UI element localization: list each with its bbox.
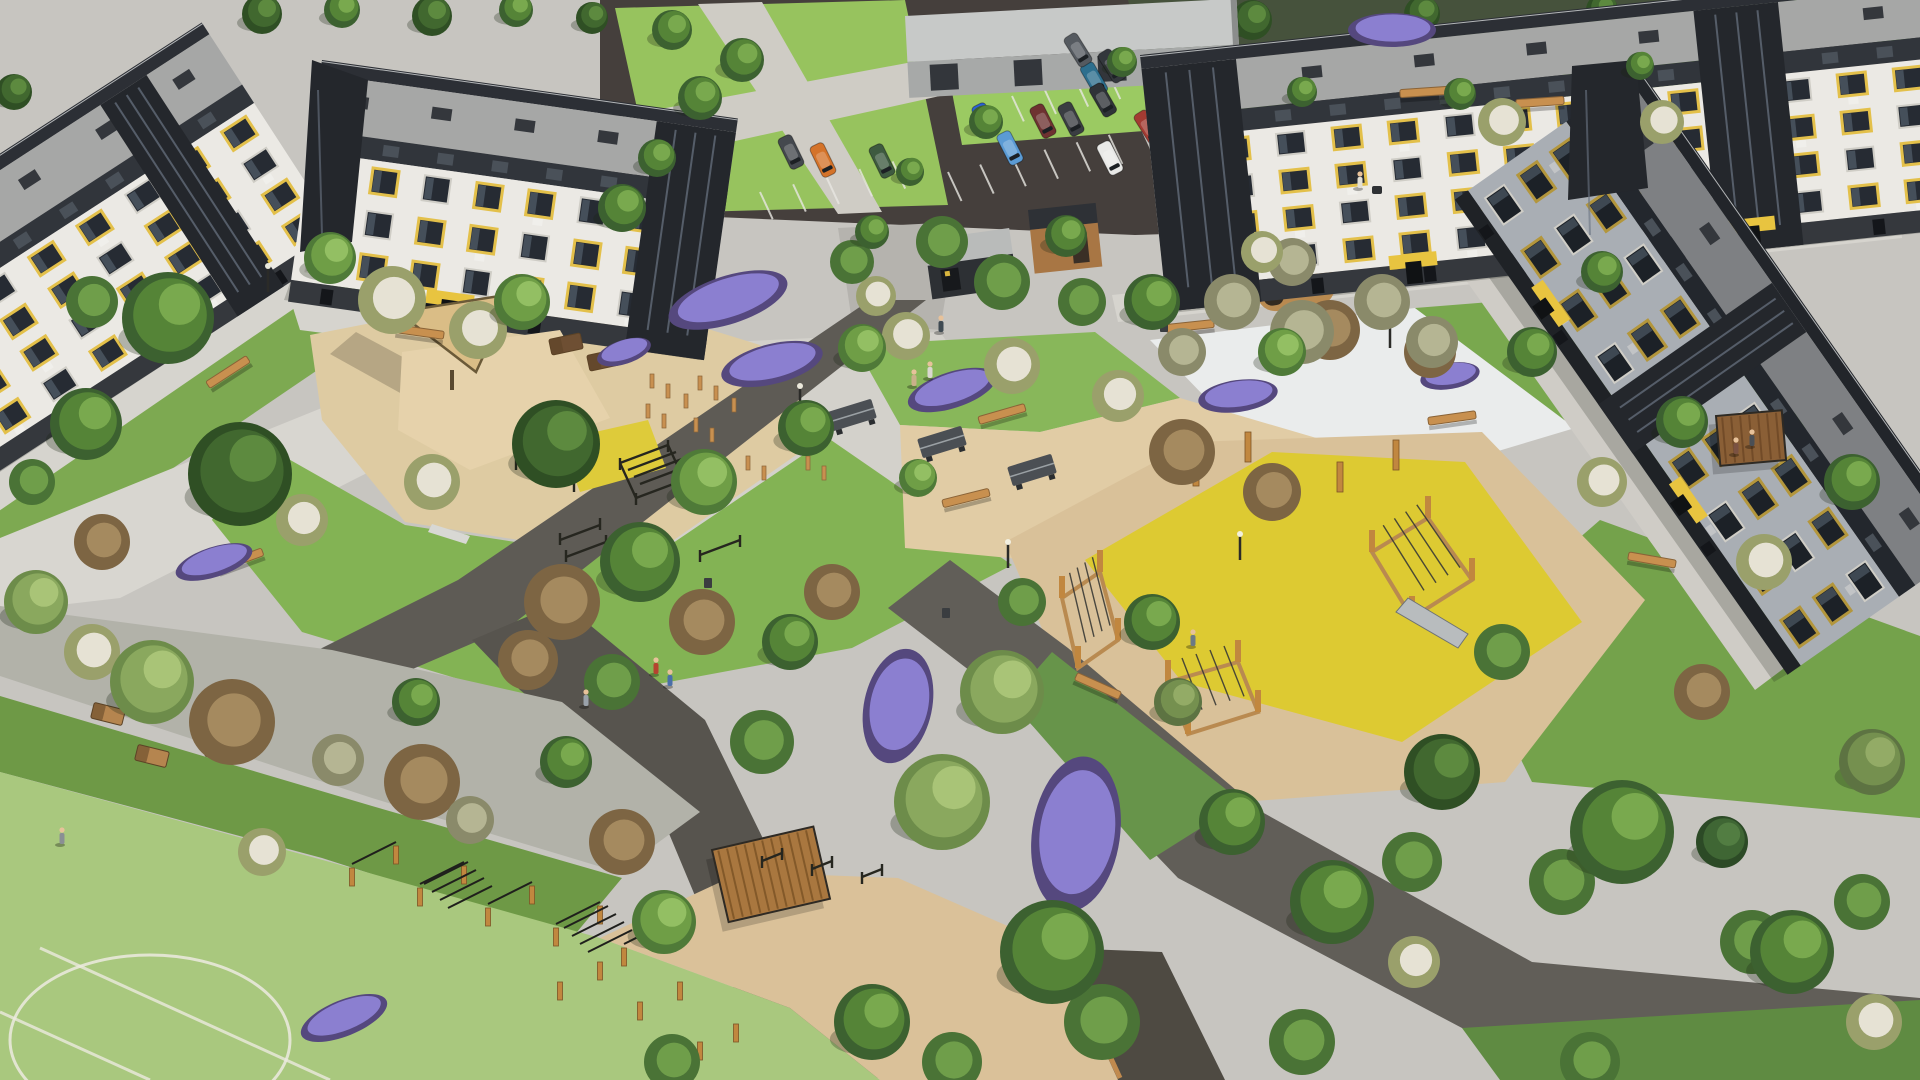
ornamental-grass-top bbox=[1217, 283, 1252, 318]
green-shrub bbox=[974, 254, 1030, 310]
tree-canopy-highlight bbox=[1225, 797, 1255, 827]
green-shrub-top bbox=[597, 663, 632, 698]
person-head bbox=[653, 657, 658, 662]
tree-canopy-highlight bbox=[983, 109, 998, 124]
ac-unit bbox=[1916, 203, 1920, 211]
climb-post bbox=[1425, 496, 1431, 518]
tree-canopy-highlight bbox=[10, 79, 26, 95]
dry-grass-cluster bbox=[524, 564, 600, 640]
person-head bbox=[667, 669, 672, 674]
dry-grass-cluster-top bbox=[400, 756, 447, 803]
tree-canopy-highlight bbox=[632, 532, 668, 568]
hut-door bbox=[940, 268, 961, 292]
green-shrub bbox=[1058, 278, 1106, 326]
tree-canopy-highlight bbox=[1717, 823, 1740, 846]
ornamental-grass-top bbox=[1279, 245, 1309, 275]
attic-window bbox=[1876, 46, 1893, 59]
green-shrub-top bbox=[840, 246, 867, 273]
lamp-head bbox=[265, 263, 271, 269]
tree-canopy-highlight bbox=[144, 651, 182, 689]
flowering-shrub bbox=[1388, 936, 1440, 988]
person-head bbox=[583, 689, 588, 694]
play-post bbox=[650, 374, 654, 388]
climb-post bbox=[1235, 640, 1241, 662]
ground-door bbox=[1423, 266, 1437, 283]
ornamental-grass bbox=[1354, 274, 1410, 330]
green-shrub bbox=[1834, 874, 1890, 930]
green-shrub-top bbox=[928, 224, 960, 256]
workout-post-wood bbox=[350, 868, 355, 886]
person-head bbox=[1190, 629, 1195, 634]
ornamental-grass bbox=[446, 796, 494, 844]
attic-window bbox=[491, 160, 508, 173]
tree-canopy-highlight bbox=[932, 766, 975, 809]
tree-canopy-highlight bbox=[1062, 220, 1081, 239]
tree-canopy-highlight bbox=[411, 684, 433, 706]
tower-body bbox=[1568, 60, 1648, 200]
tree-canopy-highlight bbox=[1612, 793, 1659, 840]
tree-canopy-highlight bbox=[1677, 403, 1700, 426]
swing-post bbox=[1393, 440, 1399, 470]
flowering-shrub-top bbox=[893, 319, 923, 349]
green-shrub-top bbox=[1395, 841, 1432, 878]
flowering-shrub-top bbox=[77, 633, 112, 668]
workout-post-wood bbox=[622, 948, 627, 966]
climb-post bbox=[1469, 558, 1475, 580]
workout-post-black bbox=[599, 518, 601, 530]
attic-window bbox=[1822, 52, 1839, 65]
ac-unit bbox=[1467, 250, 1478, 258]
person-body bbox=[939, 321, 944, 332]
play-post bbox=[698, 376, 702, 390]
tree-canopy-highlight bbox=[653, 144, 670, 161]
swing-post bbox=[1245, 432, 1251, 462]
ground-door bbox=[1872, 219, 1886, 236]
attic-window bbox=[382, 145, 399, 158]
garage-door bbox=[1013, 59, 1042, 86]
tree-canopy-highlight bbox=[589, 6, 603, 20]
dry-grass-cluster-top bbox=[817, 573, 852, 608]
ac-unit bbox=[1295, 230, 1306, 238]
green-shrub bbox=[730, 710, 794, 774]
person-body bbox=[1358, 177, 1363, 188]
attic-window bbox=[546, 168, 563, 181]
green-shrub-top bbox=[1284, 1020, 1325, 1061]
flowering-shrub bbox=[1092, 370, 1144, 422]
tree-canopy-highlight bbox=[994, 661, 1032, 699]
tree-canopy-highlight bbox=[30, 578, 59, 607]
swing-post bbox=[1337, 462, 1343, 492]
workout-post-wood bbox=[530, 886, 535, 904]
flowering-shrub-top bbox=[1400, 944, 1432, 976]
rooftop-box bbox=[1863, 6, 1884, 20]
ornamental-grass bbox=[1406, 316, 1458, 368]
flowering-shrub-top bbox=[1589, 465, 1620, 496]
tree-canopy-highlight bbox=[1042, 913, 1089, 960]
attic-window bbox=[1548, 80, 1565, 93]
dry-grass-cluster bbox=[189, 679, 275, 765]
person-head bbox=[1733, 437, 1738, 442]
play-post bbox=[822, 466, 826, 480]
workout-post-black bbox=[761, 856, 763, 868]
flowering-shrub-top bbox=[997, 347, 1032, 382]
flowering-shrub bbox=[1478, 98, 1526, 146]
green-shrub-top bbox=[1847, 883, 1882, 918]
person-body bbox=[654, 663, 659, 674]
dry-grass-cluster-top bbox=[511, 639, 548, 676]
climb-post bbox=[1165, 660, 1171, 682]
green-shrub bbox=[1382, 832, 1442, 892]
green-shrub-top bbox=[935, 1041, 972, 1078]
ac-unit bbox=[532, 218, 543, 226]
lavender-bloom bbox=[1356, 14, 1431, 41]
tree-canopy-highlight bbox=[230, 435, 277, 482]
flowering-shrub-top bbox=[1650, 106, 1677, 133]
garage-door bbox=[930, 63, 959, 90]
tree-canopy-highlight bbox=[914, 464, 931, 481]
flowering-shrub bbox=[882, 312, 930, 360]
attic-window bbox=[1329, 103, 1346, 116]
flowering-shrub bbox=[1241, 231, 1283, 273]
person-body bbox=[1191, 635, 1196, 646]
play-post bbox=[666, 384, 670, 398]
dry-grass-cluster bbox=[74, 514, 130, 570]
flowering-shrub bbox=[1736, 534, 1792, 590]
flowering-shrub-top bbox=[1749, 543, 1784, 578]
green-shrub-top bbox=[744, 720, 784, 760]
tree-canopy-highlight bbox=[1248, 5, 1266, 23]
green-shrub-top bbox=[1009, 585, 1039, 615]
play-post bbox=[710, 428, 714, 442]
play-post bbox=[662, 414, 666, 428]
ornamental-grass-top bbox=[324, 742, 356, 774]
ornamental-grass bbox=[1204, 274, 1260, 330]
tree-canopy-highlight bbox=[864, 994, 898, 1028]
tree-canopy-highlight bbox=[696, 82, 716, 102]
dry-grass-cluster bbox=[498, 630, 558, 690]
attic-window bbox=[1657, 69, 1674, 82]
trash-bin bbox=[942, 608, 950, 618]
dry-grass-cluster-top bbox=[604, 820, 645, 861]
ground-door bbox=[320, 289, 334, 306]
tree-canopy-highlight bbox=[1119, 51, 1133, 65]
tree-canopy-highlight bbox=[1146, 281, 1171, 306]
green-shrub-top bbox=[987, 263, 1022, 298]
ground-door bbox=[1311, 277, 1325, 294]
green-shrub bbox=[9, 459, 55, 505]
play-post bbox=[732, 398, 736, 412]
lamp-head bbox=[797, 383, 803, 389]
dry-grass-cluster bbox=[384, 744, 460, 820]
dry-grass-cluster-top bbox=[1256, 472, 1292, 508]
attic-window bbox=[1384, 98, 1401, 111]
play-post bbox=[684, 394, 688, 408]
flowering-shrub bbox=[1577, 457, 1627, 507]
green-shrub bbox=[66, 276, 118, 328]
tree-canopy-highlight bbox=[1865, 737, 1895, 767]
climb-post bbox=[1369, 530, 1375, 552]
green-shrub bbox=[916, 216, 968, 268]
workout-post-black bbox=[811, 864, 813, 876]
climb-post bbox=[1075, 646, 1081, 668]
flowering-shrub bbox=[358, 266, 426, 334]
render-viewport bbox=[0, 0, 1920, 1080]
tree-canopy-highlight bbox=[1418, 1, 1434, 17]
person-head bbox=[938, 315, 943, 320]
flowering-shrub bbox=[1640, 100, 1684, 144]
person-head bbox=[1749, 429, 1754, 434]
ornamental-grass bbox=[1158, 328, 1206, 376]
tree-canopy-highlight bbox=[869, 219, 884, 234]
tree-canopy-highlight bbox=[79, 397, 111, 429]
tree-canopy-highlight bbox=[857, 330, 879, 352]
flowering-shrub-top bbox=[1859, 1003, 1894, 1038]
ac-unit bbox=[1399, 144, 1410, 152]
climb-post bbox=[1255, 690, 1261, 712]
person-head bbox=[927, 361, 932, 366]
tree-canopy-highlight bbox=[1299, 81, 1313, 95]
flowering-shrub bbox=[1846, 994, 1902, 1050]
tree-canopy-highlight bbox=[1277, 334, 1299, 356]
flowering-shrub-top bbox=[1104, 378, 1136, 410]
tree-canopy-highlight bbox=[800, 407, 825, 432]
dry-grass-cluster-top bbox=[684, 600, 725, 641]
ornamental-grass-top bbox=[1367, 283, 1402, 318]
ornamental-grass-top bbox=[457, 803, 487, 833]
flowering-shrub-top bbox=[1489, 105, 1519, 135]
dry-grass-cluster bbox=[589, 809, 655, 875]
attic-window bbox=[437, 153, 454, 166]
green-shrub bbox=[998, 578, 1046, 626]
ac-unit bbox=[1848, 97, 1859, 105]
flowering-shrub bbox=[856, 276, 896, 316]
flowering-shrub-top bbox=[249, 835, 279, 865]
tree-canopy-highlight bbox=[1846, 461, 1871, 486]
attic-window bbox=[1275, 109, 1292, 122]
tree-canopy-highlight bbox=[561, 743, 584, 766]
flowering-shrub-top bbox=[288, 502, 320, 534]
stroller bbox=[1372, 186, 1382, 194]
ornamental-grass-top bbox=[1418, 324, 1450, 356]
dry-grass-cluster-top bbox=[87, 523, 122, 558]
workout-post-wood bbox=[394, 846, 399, 864]
green-shrub-top bbox=[1069, 285, 1099, 315]
tree-canopy-highlight bbox=[428, 1, 446, 19]
green-shrub-top bbox=[1573, 1041, 1610, 1078]
person-body bbox=[1734, 443, 1739, 454]
play-post bbox=[762, 466, 766, 480]
green-shrub-top bbox=[657, 1043, 692, 1078]
tree-canopy-highlight bbox=[1527, 333, 1550, 356]
workout-post-wood bbox=[418, 888, 423, 906]
dry-grass-cluster bbox=[669, 589, 735, 655]
flowering-shrub bbox=[404, 454, 460, 510]
dry-grass-cluster bbox=[1674, 664, 1730, 720]
ornamental-grass bbox=[312, 734, 364, 786]
tree-canopy-highlight bbox=[547, 411, 587, 451]
tree-canopy-highlight bbox=[516, 281, 541, 306]
lavender-patch bbox=[1348, 13, 1436, 47]
lamp-head bbox=[1005, 539, 1011, 545]
tree-canopy-highlight bbox=[1637, 56, 1650, 69]
dry-grass-cluster bbox=[1243, 463, 1301, 521]
flowering-shrub bbox=[238, 828, 286, 876]
tree-canopy-highlight bbox=[1598, 256, 1617, 275]
dry-grass-cluster bbox=[804, 564, 860, 620]
person-head bbox=[1357, 171, 1362, 176]
tree-canopy-highlight bbox=[617, 190, 639, 212]
play-post bbox=[646, 404, 650, 418]
flowering-shrub-top bbox=[373, 277, 415, 319]
trash-bin bbox=[704, 578, 712, 588]
person-head bbox=[59, 827, 64, 832]
flowering-shrub-top bbox=[866, 282, 891, 307]
climb-post bbox=[1097, 550, 1103, 572]
rooftop-box bbox=[1414, 53, 1435, 67]
play-post bbox=[694, 418, 698, 432]
person-body bbox=[584, 695, 589, 706]
dry-grass-cluster-top bbox=[207, 693, 260, 746]
workout-post-wood bbox=[734, 1024, 739, 1042]
tree-canopy-highlight bbox=[1784, 921, 1822, 959]
tree-canopy-highlight bbox=[658, 898, 687, 927]
climb-post bbox=[1059, 576, 1065, 598]
tree-canopy-highlight bbox=[159, 284, 200, 325]
hut-warning-sign bbox=[945, 271, 951, 277]
person-head bbox=[911, 369, 916, 374]
workout-post-wood bbox=[678, 982, 683, 1000]
workout-post-wood bbox=[598, 962, 603, 980]
aerial-courtyard-render bbox=[0, 0, 1920, 1080]
flowering-shrub bbox=[984, 338, 1040, 394]
tree-canopy-highlight bbox=[697, 457, 727, 487]
tree-canopy-highlight bbox=[1146, 601, 1171, 626]
green-shrub-top bbox=[20, 466, 49, 495]
rooftop-box bbox=[1638, 30, 1659, 44]
workout-post-black bbox=[699, 550, 701, 562]
ac-unit bbox=[474, 253, 485, 261]
green-shrub bbox=[1474, 624, 1530, 680]
play-post bbox=[746, 456, 750, 470]
pergola-playground bbox=[1708, 410, 1787, 474]
dry-grass-cluster-top bbox=[1687, 673, 1722, 708]
dry-grass-cluster bbox=[1149, 419, 1215, 485]
workout-post-wood bbox=[486, 908, 491, 926]
tree-canopy-highlight bbox=[325, 239, 348, 262]
entrance-door bbox=[1405, 261, 1423, 285]
gazebo-pole bbox=[450, 370, 454, 390]
green-shrub bbox=[1269, 1009, 1335, 1075]
green-shrub-top bbox=[1487, 633, 1522, 668]
tree-canopy-highlight bbox=[1457, 82, 1471, 96]
person-body bbox=[912, 375, 917, 386]
tree-canopy-highlight bbox=[784, 621, 809, 646]
dry-grass-cluster-top bbox=[1164, 430, 1205, 471]
person-body bbox=[60, 833, 65, 844]
person-body bbox=[1750, 435, 1755, 446]
workout-post-wood bbox=[638, 1002, 643, 1020]
tree-canopy-highlight bbox=[907, 162, 920, 175]
rooftop-box bbox=[1526, 42, 1547, 56]
green-shrub-top bbox=[78, 284, 110, 316]
flowering-shrub-top bbox=[417, 463, 452, 498]
workout-post-wood bbox=[554, 928, 559, 946]
play-post bbox=[806, 456, 810, 470]
dry-grass-cluster-top bbox=[540, 576, 587, 623]
green-shrub-top bbox=[1080, 996, 1127, 1043]
flowering-shrub-top bbox=[1251, 237, 1277, 263]
person-body bbox=[928, 367, 933, 378]
tree-canopy-highlight bbox=[1324, 871, 1362, 909]
attic-window bbox=[1493, 86, 1510, 99]
green-shrub bbox=[584, 654, 640, 710]
play-post bbox=[714, 386, 718, 400]
tree-canopy-highlight bbox=[738, 44, 758, 64]
ac-unit bbox=[1796, 140, 1807, 148]
workout-post-wood bbox=[558, 982, 563, 1000]
tree-canopy-highlight bbox=[668, 15, 686, 33]
lamp-head bbox=[1237, 531, 1243, 537]
ornamental-grass-top bbox=[1169, 335, 1199, 365]
person-body bbox=[668, 675, 673, 686]
tree-canopy-highlight bbox=[1434, 744, 1468, 778]
workout-post-black bbox=[861, 872, 863, 884]
tree-canopy-highlight bbox=[1173, 684, 1195, 706]
